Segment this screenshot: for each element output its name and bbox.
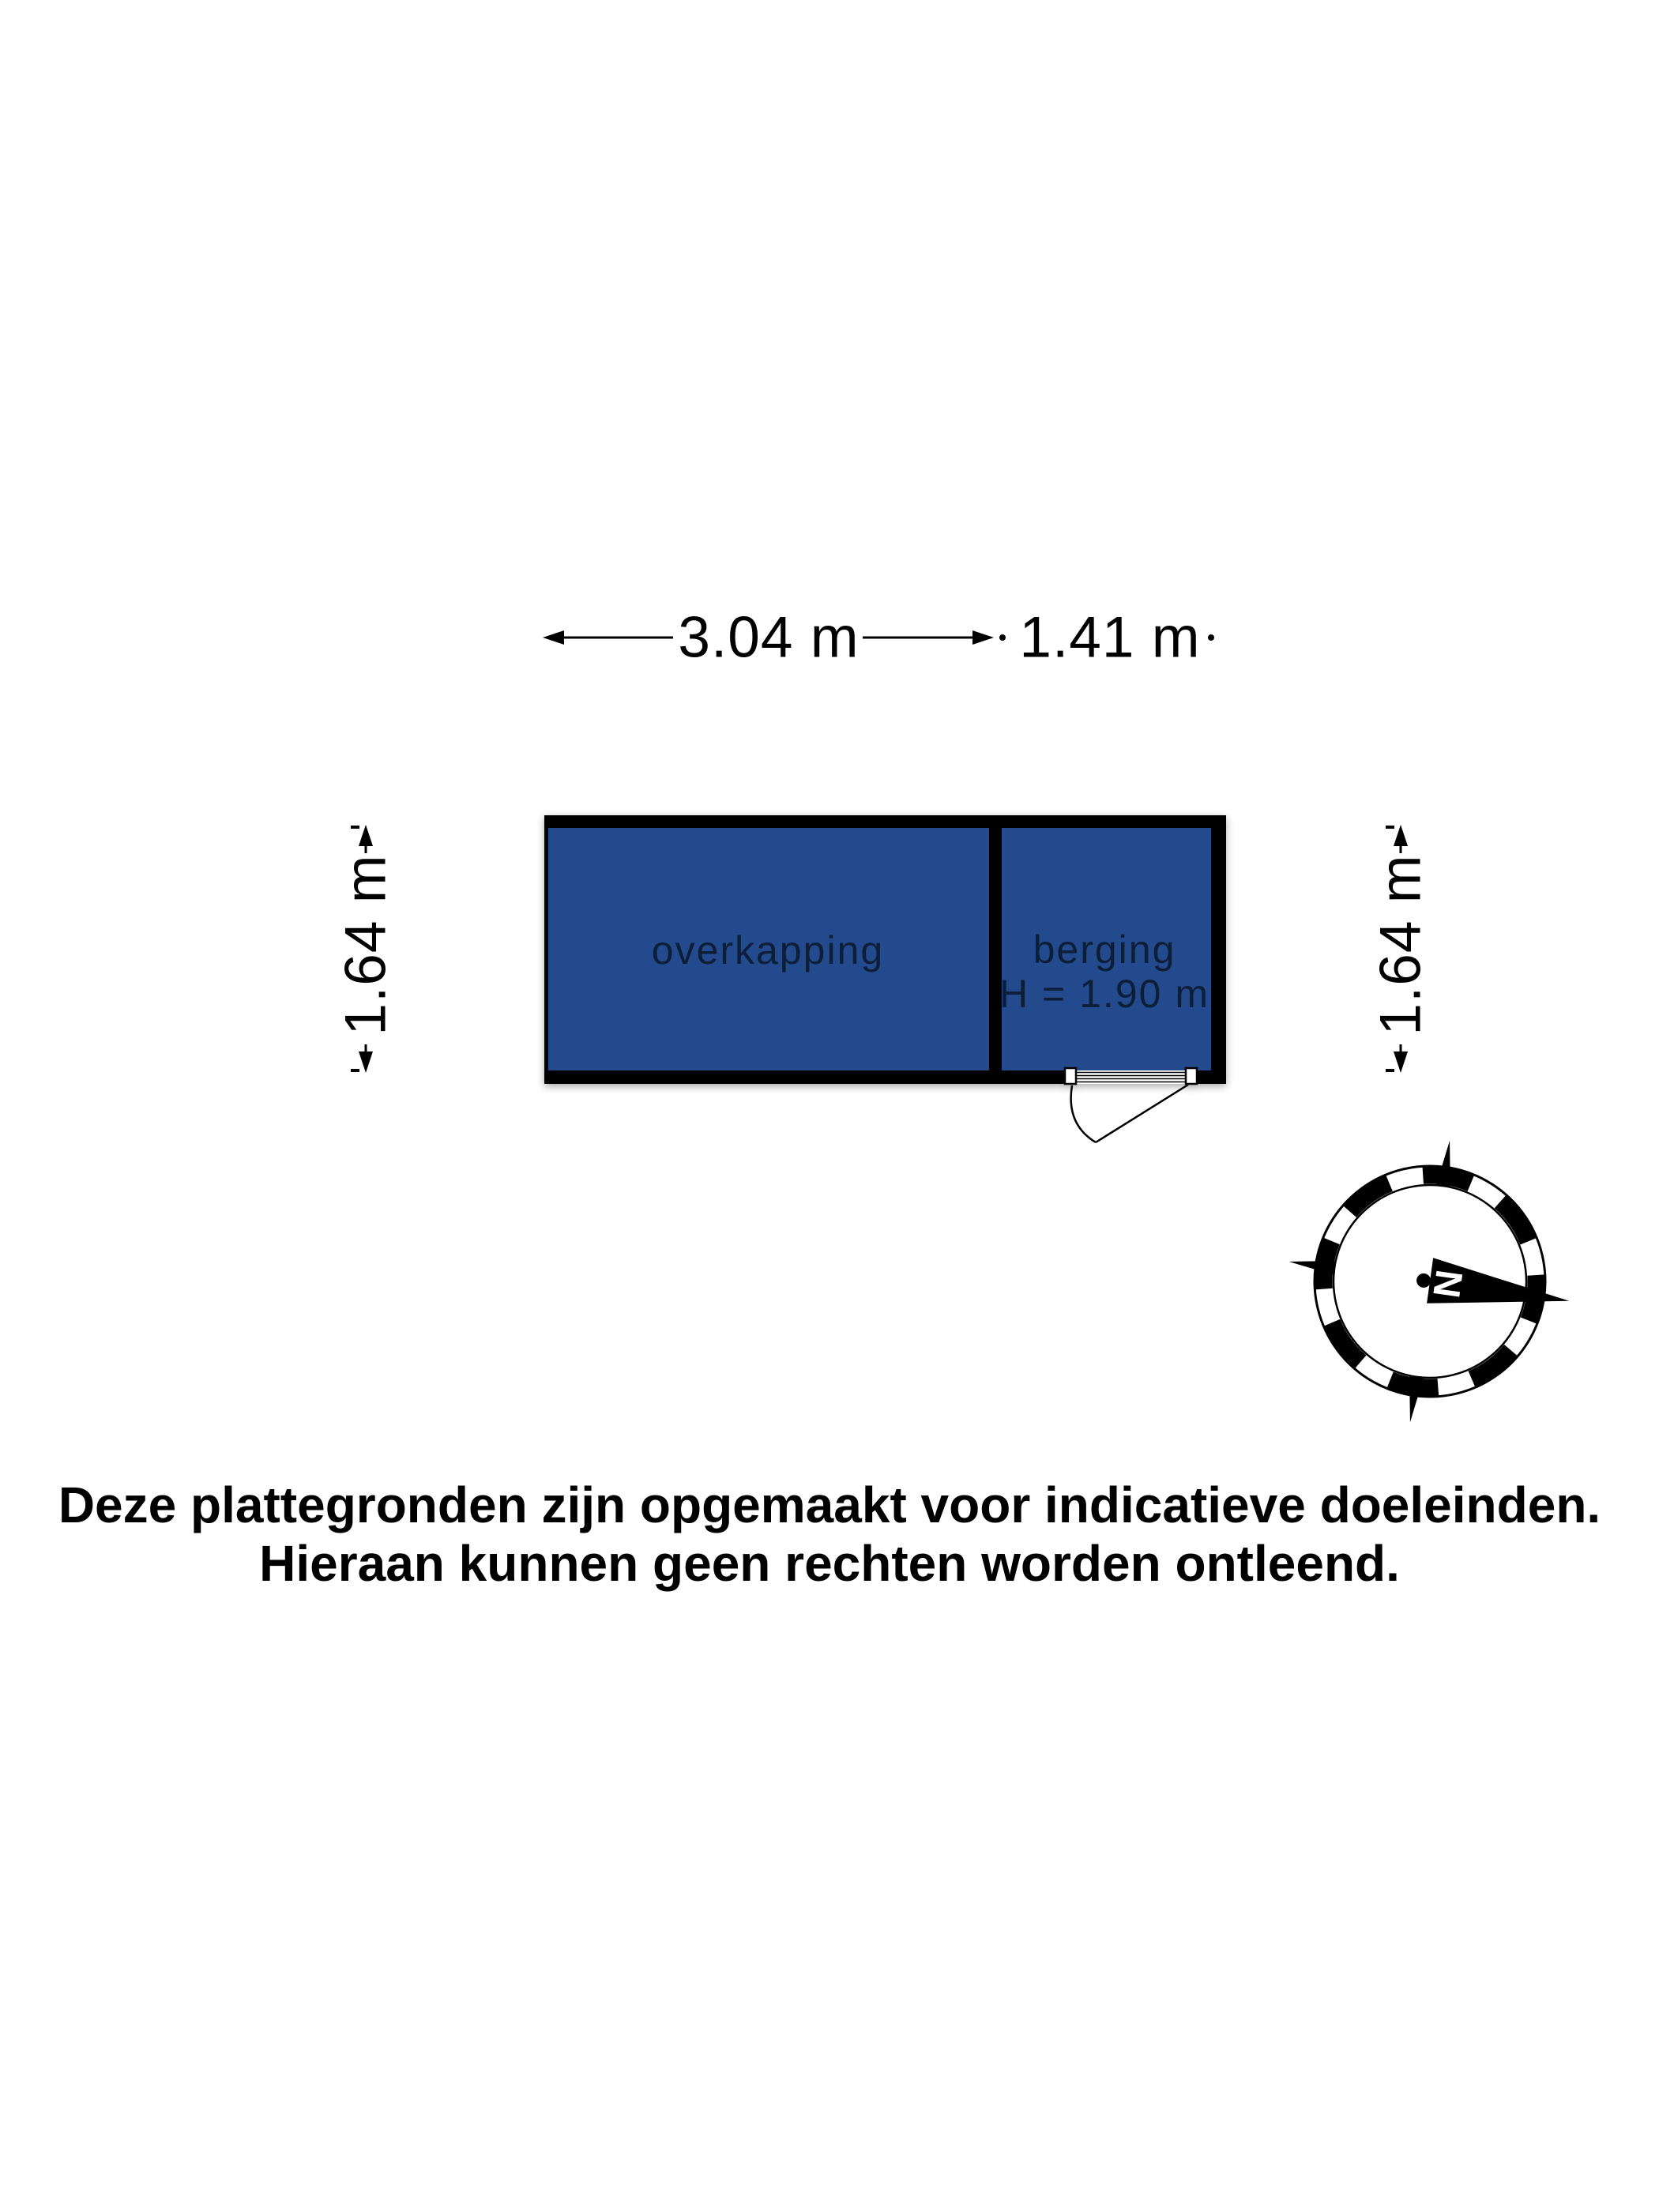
- door-leaf: [1096, 1085, 1188, 1142]
- door-swing: [1071, 1085, 1188, 1142]
- arrow-down-icon: [359, 1051, 373, 1073]
- room-label-overkapping: overkapping: [652, 927, 884, 973]
- wall-right: [1211, 828, 1226, 1070]
- arrow-left-icon: [543, 630, 564, 645]
- compass-north-label: N: [1424, 1267, 1469, 1300]
- wall-top: [544, 815, 1226, 828]
- floorplan-drawing: N: [0, 0, 1659, 2212]
- room-label-berging-name: berging: [999, 927, 1209, 972]
- wall-left-open-edge: [544, 828, 548, 1070]
- floorplan-page: N 3.04 m 1.41 m 1.64 m 1.64 m overkappin…: [0, 0, 1659, 2212]
- dimension-label-width-berging: 1.41 m: [1019, 605, 1200, 671]
- door-jamb-right: [1186, 1068, 1197, 1084]
- arrow-down-icon: [1394, 1051, 1408, 1073]
- door-jamb-left: [1065, 1068, 1076, 1084]
- arrow-right-icon: [972, 630, 994, 645]
- disclaimer-line-1: Deze plattegronden zijn opgemaakt voor i…: [0, 1476, 1659, 1534]
- disclaimer-text: Deze plattegronden zijn opgemaakt voor i…: [0, 1476, 1659, 1593]
- room-label-berging-height: H = 1.90 m: [999, 972, 1209, 1016]
- door-opening: [1065, 1068, 1197, 1084]
- disclaimer-line-2: Hieraan kunnen geen rechten worden ontle…: [0, 1534, 1659, 1593]
- room-label-berging: berging H = 1.90 m: [999, 927, 1209, 1016]
- dimension-label-height-right: 1.64 m: [1368, 854, 1434, 1035]
- compass-rose: N: [1270, 1121, 1589, 1442]
- dimension-label-height-left: 1.64 m: [333, 854, 399, 1035]
- dimension-label-width-overkapping: 3.04 m: [678, 605, 859, 671]
